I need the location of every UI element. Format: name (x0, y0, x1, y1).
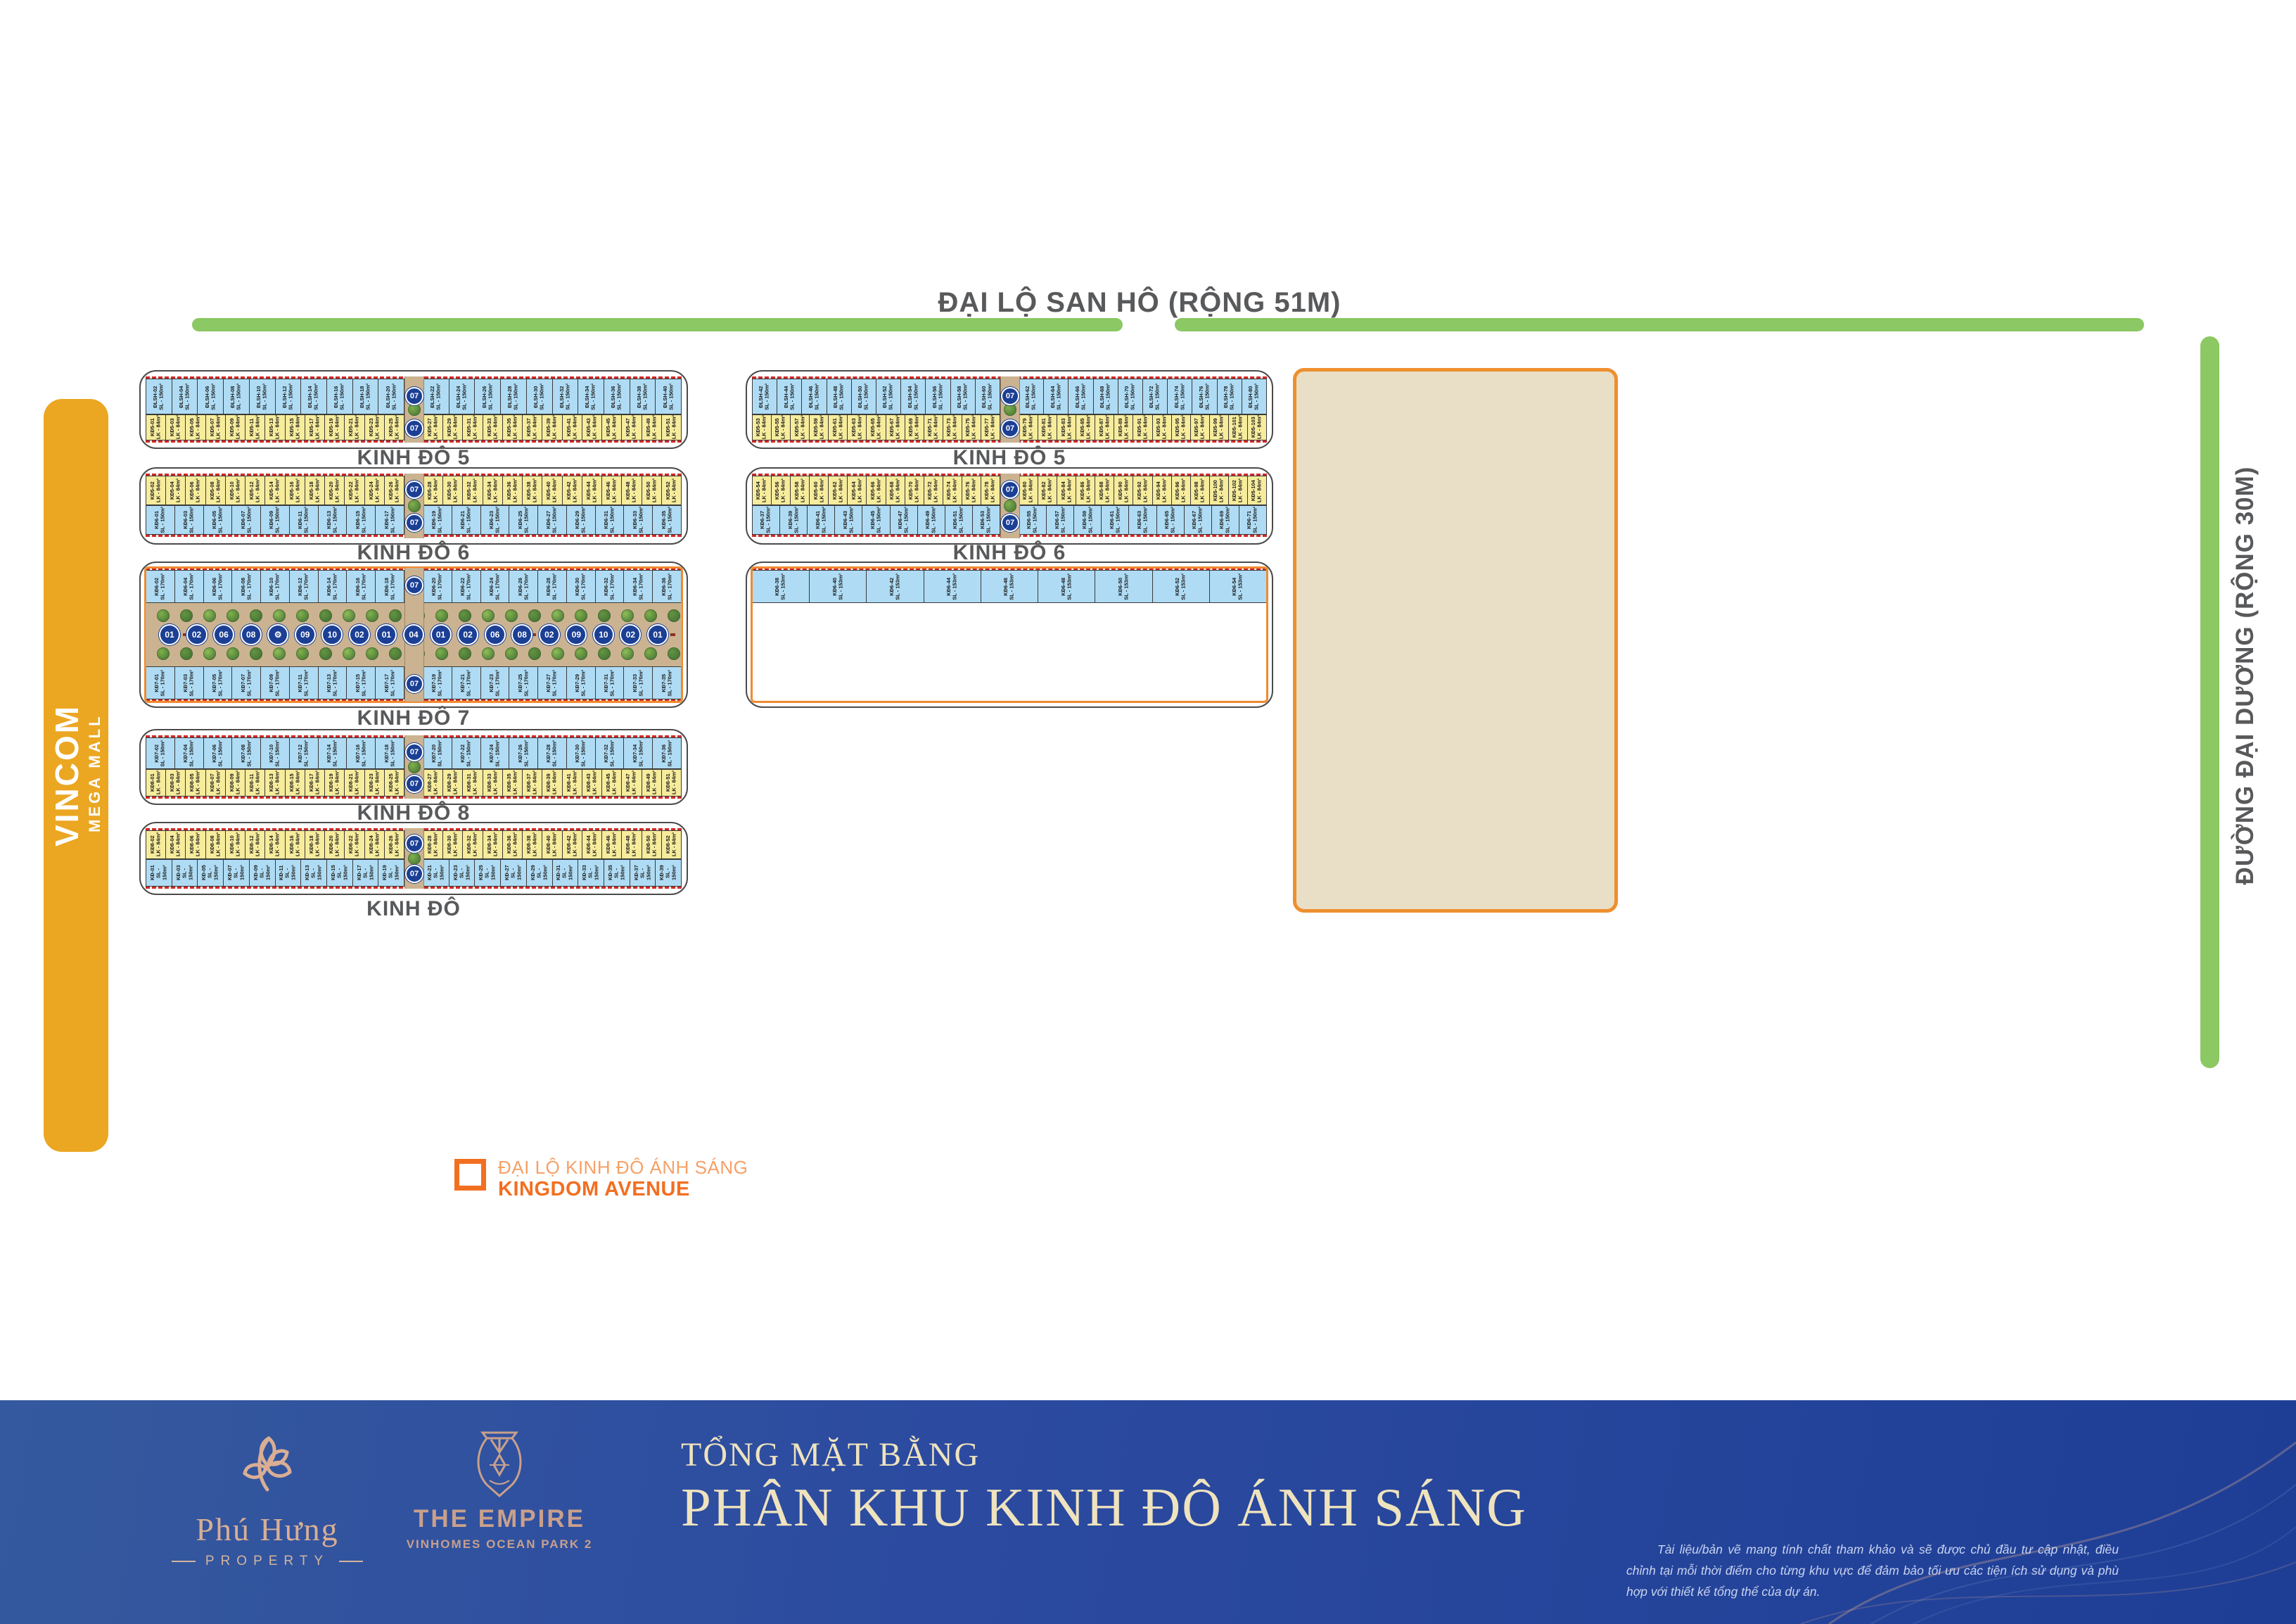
lot: ĐLSH-18 SL - 150m² (353, 379, 379, 414)
street-label: KINH ĐÔ (366, 897, 461, 921)
avenue-tree (319, 609, 332, 622)
lot: KĐ5-73 LK - 84m² (943, 414, 962, 440)
lot: KĐ5-64 LK - 84m² (848, 476, 867, 505)
lot: KĐ5-68 LK - 84m² (886, 476, 905, 505)
lot: KĐ-11 SL - 150m² (276, 859, 302, 887)
lot: KĐ5-100 LK - 84m² (1210, 476, 1229, 505)
lot: KĐ-33 SL - 150m² (578, 859, 604, 887)
avenue-tree (528, 609, 541, 622)
lot: KĐ8-21 LK - 84m² (345, 769, 364, 797)
lot: KĐ6-12 SL - 170m² (290, 570, 319, 603)
lot: KĐ5-04 LK - 84m² (166, 476, 186, 505)
lot-row-block: KĐ5-54 LK - 84m²KĐ5-56 LK - 84m²KĐ5-58 L… (746, 467, 1273, 545)
lot: KĐ8-52 LK - 84m² (662, 830, 682, 859)
lot: ĐLSH-80 SL - 150m² (1242, 379, 1267, 414)
lot: KĐ5-81 LK - 84m² (1038, 414, 1057, 440)
lot-row-block: ĐLSH-02 SL - 150m²ĐLSH-04 SL - 150m²ĐLSH… (139, 370, 688, 449)
avenue-tree (250, 609, 262, 622)
lot: KĐ5-48 LK - 84m² (622, 476, 642, 505)
lot: KĐ6-02 SL - 170m² (146, 570, 175, 603)
lot: KĐ5-31 LK - 84m² (463, 414, 483, 440)
lot: KĐ5-20 LK - 84m² (325, 476, 345, 505)
lot: KĐ5-02 LK - 84m² (146, 476, 166, 505)
lot: KĐ6-55 SL - 150m² (1019, 505, 1047, 535)
walkway-badge: 07 (405, 865, 423, 883)
lot: KĐ8-13 LK - 84m² (265, 769, 285, 797)
phu-hung-sub: PROPERTY (162, 1554, 373, 1569)
lot: KĐ8-51 LK - 84m² (662, 769, 682, 797)
lot: KĐ-27 SL - 150m² (501, 859, 527, 887)
lot: KĐ5-57 LK - 84m² (791, 414, 810, 440)
lot: KĐ6-40 SL - 153m² (810, 570, 867, 603)
lot: KĐ5-55 LK - 84m² (772, 414, 791, 440)
walkway-badge: 07 (405, 514, 423, 532)
lot: ĐLSH-42 SL - 150m² (752, 379, 777, 414)
lot: ĐLSH-30 SL - 150m² (527, 379, 553, 414)
lot: KĐ8-28 LK - 84m² (423, 830, 443, 859)
the-empire-logo: THE EMPIRE VINHOMES OCEAN PARK 2 (394, 1428, 605, 1552)
lot-strip: KĐ6-38 SL - 153m²KĐ6-40 SL - 153m²KĐ6-42… (752, 568, 1267, 603)
lot: ĐLSH-34 SL - 150m² (578, 379, 604, 414)
lot: KĐ6-07 SL - 150m² (232, 505, 261, 535)
lot: KĐ6-27 SL - 150m² (538, 505, 567, 535)
lot: KĐ7-27 SL - 170m² (538, 666, 567, 699)
lot: KĐ6-16 SL - 170m² (347, 570, 376, 603)
avenue-badge: 08 (241, 624, 262, 645)
lot: KĐ6-28 SL - 170m² (538, 570, 567, 603)
avenue-badge: ⚙ (267, 624, 288, 645)
lot: KĐ5-22 LK - 84m² (345, 476, 364, 505)
lot: KĐ8-43 LK - 84m² (582, 769, 602, 797)
lot: KĐ5-32 LK - 84m² (463, 476, 483, 505)
lot-row-block: KĐ7-02 SL - 150m²KĐ7-04 SL - 150m²KĐ7-06… (139, 729, 688, 805)
lot: KĐ5-44 LK - 84m² (582, 476, 602, 505)
lot: KĐ5-10 LK - 84m² (226, 476, 245, 505)
lot: KĐ6-29 SL - 150m² (567, 505, 596, 535)
walkway: 0707 (404, 735, 424, 799)
lot: KĐ-31 SL - 150m² (553, 859, 579, 887)
lot: ĐLSH-04 SL - 150m² (172, 379, 198, 414)
lot: KĐ5-90 LK - 84m² (1114, 476, 1133, 505)
avenue-tree (203, 609, 216, 622)
lot: KĐ8-14 LK - 84m² (265, 830, 285, 859)
lot: KĐ8-22 LK - 84m² (345, 830, 364, 859)
avenue-tree (644, 647, 657, 660)
lot: KĐ5-07 LK - 84m² (206, 414, 226, 440)
lot: KĐ5-83 LK - 84m² (1057, 414, 1076, 440)
lot: KĐ5-50 LK - 84m² (642, 476, 662, 505)
avenue-tree (366, 647, 378, 660)
lot: KĐ5-61 LK - 84m² (829, 414, 848, 440)
lot: KĐ7-29 SL - 170m² (567, 666, 596, 699)
avenue-tree (203, 647, 216, 660)
lot: KĐ5-29 LK - 84m² (443, 414, 463, 440)
lot: KĐ8-24 LK - 84m² (365, 830, 385, 859)
avenue-tree (459, 647, 471, 660)
park-badges (1296, 372, 1614, 909)
lot: KĐ-37 SL - 150m² (630, 859, 656, 887)
walkway-badge: 07 (405, 775, 423, 793)
phu-hung-name: Phú Hưng (162, 1511, 373, 1548)
lot: KĐ7-35 SL - 170m² (653, 666, 682, 699)
walkway-badge: 07 (405, 419, 423, 438)
lot: KĐ7-16 SL - 150m² (347, 737, 376, 769)
lot: KĐ7-26 SL - 150m² (509, 737, 538, 769)
lot: KĐ8-39 LK - 84m² (542, 769, 562, 797)
avenue-badge: 10 (593, 624, 614, 645)
lot-row-block: ĐLSH-42 SL - 150m²ĐLSH-44 SL - 150m²ĐLSH… (746, 370, 1273, 449)
lot: KĐ5-16 LK - 84m² (286, 476, 305, 505)
lot: KĐ8-03 LK - 84m² (166, 769, 186, 797)
lot: KĐ5-99 LK - 84m² (1210, 414, 1229, 440)
lot: KĐ6-10 SL - 170m² (261, 570, 290, 603)
lot: KĐ5-97 LK - 84m² (1191, 414, 1210, 440)
lot: KĐ5-82 LK - 84m² (1038, 476, 1057, 505)
lot: KĐ5-92 LK - 84m² (1133, 476, 1152, 505)
lot: KĐ5-103 LK - 84m² (1248, 414, 1267, 440)
lot: KĐ5-11 LK - 84m² (245, 414, 265, 440)
lot: KĐ5-69 LK - 84m² (905, 414, 924, 440)
walkway-badge: 07 (1001, 481, 1019, 499)
lot: KĐ-35 SL - 150m² (604, 859, 630, 887)
lot: KĐ7-01 SL - 170m² (146, 666, 175, 699)
lot: ĐLSH-28 SL - 150m² (501, 379, 527, 414)
lot: KĐ5-76 LK - 84m² (962, 476, 981, 505)
lot: KĐ7-12 SL - 150m² (290, 737, 319, 769)
lot: KĐ5-23 LK - 84m² (365, 414, 385, 440)
lot: KĐ6-52 SL - 153m² (1153, 570, 1210, 603)
lot: KĐ8-23 LK - 84m² (365, 769, 385, 797)
avenue-tree (621, 647, 634, 660)
lot-row-block: KĐ6-38 SL - 153m²KĐ6-40 SL - 153m²KĐ6-42… (746, 562, 1273, 708)
lot: KĐ5-09 LK - 84m² (226, 414, 245, 440)
lot: KĐ8-47 LK - 84m² (622, 769, 642, 797)
lot: ĐLSH-74 SL - 150m² (1168, 379, 1192, 414)
lot: KĐ5-89 LK - 84m² (1114, 414, 1133, 440)
lot: KĐ8-34 LK - 84m² (483, 830, 503, 859)
phu-hung-logo-mark (225, 1423, 310, 1507)
lot: KĐ6-69 SL - 150m² (1212, 505, 1239, 535)
lot: KĐ7-18 SL - 150m² (376, 737, 404, 769)
avenue-tree (227, 609, 239, 622)
lot: KĐ5-25 LK - 84m² (385, 414, 404, 440)
lot: KĐ8-18 LK - 84m² (305, 830, 325, 859)
lot: KĐ6-36 SL - 170m² (653, 570, 682, 603)
lot: KĐ6-47 SL - 150m² (891, 505, 918, 535)
avenue-tree (668, 609, 680, 622)
lot: KĐ6-25 SL - 150m² (509, 505, 538, 535)
avenue-tree (644, 609, 657, 622)
lot: KĐ6-37 SL - 150m² (752, 505, 780, 535)
lot: KĐ5-08 LK - 84m² (206, 476, 226, 505)
lot: KĐ8-01 LK - 84m² (146, 769, 166, 797)
avenue-tree (296, 647, 309, 660)
lot: KĐ6-31 SL - 150m² (596, 505, 625, 535)
lot: KĐ5-96 LK - 84m² (1172, 476, 1191, 505)
lot: KĐ8-16 LK - 84m² (286, 830, 305, 859)
walkway-tree (408, 852, 421, 865)
lot: KĐ6-08 SL - 170m² (232, 570, 261, 603)
lot: KĐ8-41 LK - 84m² (563, 769, 582, 797)
walkway: 0707 (1000, 376, 1020, 443)
avenue-badge: 02 (620, 624, 641, 645)
walkway-tree (1004, 403, 1016, 416)
lot: KĐ5-01 LK - 84m² (146, 414, 166, 440)
lot: KĐ5-12 LK - 84m² (245, 476, 265, 505)
lot: KĐ-29 SL - 150m² (527, 859, 553, 887)
lot: KĐ8-38 LK - 84m² (523, 830, 542, 859)
lot: KĐ6-15 SL - 150m² (347, 505, 376, 535)
lot: ĐLSH-72 SL - 150m² (1143, 379, 1168, 414)
avenue-tree (575, 609, 587, 622)
lot: KĐ5-70 LK - 84m² (905, 476, 924, 505)
lot: KĐ-23 SL - 150m² (449, 859, 476, 887)
lot: KĐ7-21 SL - 170m² (452, 666, 481, 699)
lot: KĐ5-36 LK - 84m² (503, 476, 523, 505)
lot: KĐ5-14 LK - 84m² (265, 476, 285, 505)
avenue-badge: 04 (403, 624, 424, 645)
lot: KĐ8-07 LK - 84m² (206, 769, 226, 797)
street-label: KINH ĐÔ 5 (953, 446, 1066, 470)
lot: KĐ8-10 LK - 84m² (226, 830, 245, 859)
lot: KĐ6-53 SL - 150m² (973, 505, 1000, 535)
avenue-tree (459, 609, 471, 622)
walkway-badge: 07 (405, 835, 423, 853)
lot-row-block: KĐ8-02 LK - 84m²KĐ8-04 LK - 84m²KĐ8-06 L… (139, 822, 688, 895)
lot: KĐ8-19 LK - 84m² (325, 769, 345, 797)
lot: KĐ5-40 LK - 84m² (542, 476, 562, 505)
lot: KĐ-19 SL - 150m² (378, 859, 404, 887)
lot: ĐLSH-24 SL - 150m² (449, 379, 476, 414)
lot: KĐ7-13 SL - 170m² (319, 666, 347, 699)
lot: KĐ6-01 SL - 150m² (146, 505, 175, 535)
avenue-tree (575, 647, 587, 660)
lot: KĐ6-50 SL - 153m² (1095, 570, 1152, 603)
avenue-tree (250, 647, 262, 660)
lot: KĐ6-48 SL - 153m² (1038, 570, 1095, 603)
avenue-badge: 06 (213, 624, 234, 645)
lot: KĐ8-48 LK - 84m² (622, 830, 642, 859)
lot: KĐ5-38 LK - 84m² (523, 476, 542, 505)
walkway-badge: 07 (405, 743, 423, 761)
lot: KĐ6-38 SL - 153m² (752, 570, 810, 603)
lot: KĐ5-102 LK - 84m² (1229, 476, 1248, 505)
lot: KĐ6-43 SL - 150m² (835, 505, 862, 535)
lot: KĐ5-65 LK - 84m² (867, 414, 886, 440)
lot: KĐ-15 SL - 150m² (327, 859, 353, 887)
lot: ĐLSH-16 SL - 150m² (327, 379, 353, 414)
lot: KĐ7-04 SL - 150m² (175, 737, 204, 769)
lot: KĐ5-17 LK - 84m² (305, 414, 325, 440)
lot: KĐ5-86 LK - 84m² (1076, 476, 1095, 505)
central-park (1293, 368, 1618, 913)
lot: KĐ5-45 LK - 84m² (602, 414, 622, 440)
walkway-tree (408, 500, 421, 512)
lot: KĐ7-02 SL - 150m² (146, 737, 175, 769)
lot: KĐ6-26 SL - 170m² (509, 570, 538, 603)
lot: KĐ7-33 SL - 170m² (624, 666, 653, 699)
lot: KĐ5-51 LK - 84m² (662, 414, 682, 440)
lot: KĐ5-54 LK - 84m² (752, 476, 772, 505)
lot: KĐ7-23 SL - 170m² (481, 666, 510, 699)
lot: KĐ5-88 LK - 84m² (1095, 476, 1114, 505)
lot: KĐ5-15 LK - 84m² (286, 414, 305, 440)
lot: KĐ7-17 SL - 170m² (376, 666, 404, 699)
lot: ĐLSH-38 SL - 150m² (630, 379, 656, 414)
walkway-badge: 07 (1001, 514, 1019, 532)
lot: KĐ-13 SL - 150m² (301, 859, 327, 887)
lot: ĐLSH-58 SL - 150m² (951, 379, 976, 414)
lot: KĐ8-50 LK - 84m² (642, 830, 662, 859)
lot: KĐ5-87 LK - 84m² (1095, 414, 1114, 440)
avenue-tree (180, 647, 193, 660)
lot: KĐ-05 SL - 150m² (198, 859, 224, 887)
lot: KĐ6-65 SL - 150m² (1157, 505, 1185, 535)
avenue-badge: 10 (321, 624, 343, 645)
lot: ĐLSH-76 SL - 150m² (1192, 379, 1217, 414)
lot: KĐ7-28 SL - 150m² (538, 737, 567, 769)
avenue-badge: 06 (485, 624, 506, 645)
avenue-tree (227, 647, 239, 660)
lot: KĐ6-61 SL - 150m² (1102, 505, 1129, 535)
lot: KĐ6-57 SL - 150m² (1047, 505, 1074, 535)
lot: KĐ7-30 SL - 150m² (567, 737, 596, 769)
lot: KĐ5-101 LK - 84m² (1229, 414, 1248, 440)
lot: KĐ6-41 SL - 150m² (808, 505, 835, 535)
avenue-badge: 08 (511, 624, 532, 645)
lot: KĐ8-25 LK - 84m² (385, 769, 404, 797)
footer-title-line1: TỔNG MẶT BẰNG (681, 1435, 980, 1474)
avenue-tree (273, 609, 286, 622)
lot: KĐ5-21 LK - 84m² (345, 414, 364, 440)
lot: KĐ7-25 SL - 170m² (509, 666, 538, 699)
avenue-tree (505, 647, 518, 660)
the-empire-name: THE EMPIRE (394, 1505, 605, 1533)
lot: KĐ5-34 LK - 84m² (483, 476, 503, 505)
lot: ĐLSH-12 SL - 150m² (276, 379, 302, 414)
lot: KĐ8-02 LK - 84m² (146, 830, 166, 859)
avenue-tree (157, 609, 170, 622)
lot: KĐ5-71 LK - 84m² (924, 414, 943, 440)
lot: KĐ-01 SL - 150m² (146, 859, 172, 887)
lot: KĐ8-36 LK - 84m² (503, 830, 523, 859)
lot: ĐLSH-78 SL - 150m² (1218, 379, 1242, 414)
avenue-tree (296, 609, 309, 622)
lot: KĐ6-35 SL - 150m² (653, 505, 682, 535)
walkway-badge: 07 (1001, 387, 1019, 405)
lot: KĐ7-03 SL - 170m² (175, 666, 204, 699)
lot: KĐ8-20 LK - 84m² (325, 830, 345, 859)
walkway: 0707 (1000, 474, 1020, 538)
lot: KĐ5-98 LK - 84m² (1191, 476, 1210, 505)
lot: KĐ5-03 LK - 84m² (166, 414, 186, 440)
lot: KĐ5-13 LK - 84m² (265, 414, 285, 440)
lot: KĐ5-18 LK - 84m² (305, 476, 325, 505)
street-label: KINH ĐÔ 5 (357, 446, 471, 470)
lot: KĐ8-37 LK - 84m² (523, 769, 542, 797)
masterplan-poster: ĐẠI LỘ SAN HÔ (RỘNG 51M) ĐƯỜNG ĐẠI DƯƠNG… (0, 0, 2296, 1624)
lot: ĐLSH-48 SL - 150m² (827, 379, 852, 414)
avenue-tree (551, 647, 564, 660)
lot: KĐ7-08 SL - 150m² (232, 737, 261, 769)
lot: KĐ7-14 SL - 150m² (319, 737, 347, 769)
lot: KĐ5-05 LK - 84m² (186, 414, 205, 440)
lot: KĐ6-34 SL - 170m² (624, 570, 653, 603)
avenue-tree (668, 647, 680, 660)
lot: KĐ5-56 LK - 84m² (772, 476, 791, 505)
lot: KĐ5-59 LK - 84m² (810, 414, 829, 440)
lot: KĐ5-72 LK - 84m² (924, 476, 943, 505)
walkway: 0707 (404, 474, 424, 538)
avenue-tree (157, 647, 170, 660)
lot: KĐ8-40 LK - 84m² (542, 830, 562, 859)
lot: KĐ6-51 SL - 150m² (945, 505, 973, 535)
lot: KĐ6-67 SL - 150m² (1185, 505, 1212, 535)
lot: KĐ5-74 LK - 84m² (943, 476, 962, 505)
lot: KĐ6-49 SL - 150m² (918, 505, 945, 535)
lot: KĐ8-42 LK - 84m² (563, 830, 582, 859)
lot: KĐ6-09 SL - 150m² (261, 505, 290, 535)
lot: KĐ8-46 LK - 84m² (602, 830, 622, 859)
avenue-tree (435, 609, 448, 622)
lot: KĐ5-77 LK - 84m² (981, 414, 1000, 440)
lot: KĐ5-28 LK - 84m² (423, 476, 443, 505)
lot: ĐLSH-62 SL - 150m² (1019, 379, 1044, 414)
lot: KĐ7-19 SL - 170m² (423, 666, 452, 699)
lot: KĐ8-05 LK - 84m² (186, 769, 205, 797)
lot: KĐ6-11 SL - 150m² (290, 505, 319, 535)
lot: KĐ6-24 SL - 170m² (481, 570, 510, 603)
lot: KĐ6-20 SL - 170m² (423, 570, 452, 603)
avenue-tree (366, 609, 378, 622)
lot: KĐ5-75 LK - 84m² (962, 414, 981, 440)
lot: KĐ6-05 SL - 150m² (204, 505, 233, 535)
lot: KĐ6-32 SL - 170m² (596, 570, 625, 603)
avenue-badge: 02 (539, 624, 560, 645)
lot: ĐLSH-52 SL - 150m² (876, 379, 901, 414)
walkway: 0707 (404, 376, 424, 443)
walkway-badge: 07 (405, 481, 423, 499)
lot: KĐ6-44 SL - 153m² (924, 570, 981, 603)
lot: KĐ8-12 LK - 84m² (245, 830, 265, 859)
lot: ĐLSH-68 SL - 150m² (1094, 379, 1118, 414)
lot: KĐ6-17 SL - 150m² (376, 505, 404, 535)
lot: KĐ6-22 SL - 170m² (452, 570, 481, 603)
lot: KĐ8-11 LK - 84m² (245, 769, 265, 797)
lot: KĐ8-15 LK - 84m² (286, 769, 305, 797)
lot: KĐ7-07 SL - 170m² (232, 666, 261, 699)
avenue-tree (389, 647, 402, 660)
lot: KĐ5-42 LK - 84m² (563, 476, 582, 505)
lot: KĐ5-33 LK - 84m² (483, 414, 503, 440)
kingdom-avenue-label-vi: ĐẠI LỘ KINH ĐÔ ÁNH SÁNG (498, 1157, 748, 1179)
avenue-tree (180, 609, 193, 622)
lot: KĐ6-18 SL - 170m² (376, 570, 404, 603)
lot: ĐLSH-20 SL - 150m² (378, 379, 404, 414)
lot: KĐ8-17 LK - 84m² (305, 769, 325, 797)
lot: KĐ6-59 SL - 150m² (1074, 505, 1102, 535)
lot: ĐLSH-08 SL - 150m² (224, 379, 250, 414)
lot: KĐ7-31 SL - 170m² (596, 666, 625, 699)
lot: KĐ5-85 LK - 84m² (1076, 414, 1095, 440)
lot: KĐ6-71 SL - 150m² (1239, 505, 1267, 535)
avenue-tree (435, 647, 448, 660)
lot: KĐ7-22 SL - 150m² (452, 737, 481, 769)
lot: KĐ5-24 LK - 84m² (365, 476, 385, 505)
lot: KĐ5-94 LK - 84m² (1153, 476, 1172, 505)
lot: KĐ8-32 LK - 84m² (463, 830, 483, 859)
lot: KĐ5-93 LK - 84m² (1153, 414, 1172, 440)
